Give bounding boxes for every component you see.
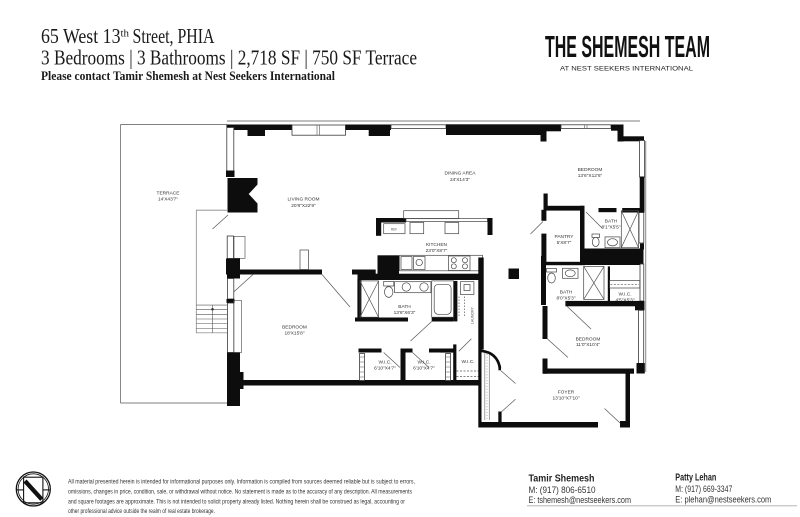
- svg-text:and square footages are approx: and square footages are approximate. Thi…: [68, 498, 406, 505]
- svg-text:REF: REF: [391, 228, 397, 232]
- svg-text:M: (917) 669-3347: M: (917) 669-3347: [675, 484, 732, 494]
- svg-text:13'6"X6'3": 13'6"X6'3": [394, 310, 416, 316]
- svg-text:24'X14'3": 24'X14'3": [450, 177, 470, 183]
- svg-text:W.I.C.: W.I.C.: [378, 360, 391, 366]
- svg-text:13'10"X7'10": 13'10"X7'10": [552, 396, 579, 402]
- svg-text:Tamir Shemesh: Tamir Shemesh: [529, 473, 595, 485]
- svg-text:8'1"X5'5": 8'1"X5'5": [601, 225, 620, 231]
- svg-text:BATH: BATH: [398, 304, 411, 310]
- svg-text:KITCHEN: KITCHEN: [426, 242, 448, 248]
- svg-text:LIVING ROOM: LIVING ROOM: [288, 197, 320, 203]
- svg-text:BEDROOM: BEDROOM: [576, 337, 601, 343]
- svg-text:14'X43'7": 14'X43'7": [158, 197, 178, 203]
- svg-text:65 West 13: 65 West 13: [41, 24, 121, 48]
- svg-text:All material presented herein: All material presented herein is intende…: [68, 479, 415, 486]
- svg-text:LAUNDRY: LAUNDRY: [471, 306, 475, 324]
- svg-text:3 Bedrooms | 3 Bathrooms | 2,7: 3 Bedrooms | 3 Bathrooms | 2,718 SF | 75…: [41, 46, 417, 70]
- svg-text:Patty Lehan: Patty Lehan: [675, 472, 716, 484]
- svg-text:BATH: BATH: [605, 219, 618, 225]
- svg-text:6'10"X4'7": 6'10"X4'7": [413, 366, 435, 372]
- svg-text:M: (917) 806-6510: M: (917) 806-6510: [529, 485, 596, 495]
- svg-text:FOYER: FOYER: [558, 390, 575, 396]
- svg-text:23'0"X8'7": 23'0"X8'7": [426, 248, 448, 254]
- svg-text:11'0"X10'4": 11'0"X10'4": [576, 342, 600, 348]
- svg-text:E: tshemesh@nestseekers.com: E: tshemesh@nestseekers.com: [529, 495, 632, 505]
- svg-text:8'0"X5'3": 8'0"X5'3": [556, 296, 575, 302]
- svg-text:PANTRY: PANTRY: [554, 234, 574, 240]
- svg-text:Street, PHIA: Street, PHIA: [133, 24, 216, 48]
- svg-text:Please contact Tamir Shemesh a: Please contact Tamir Shemesh at Nest See…: [41, 69, 335, 83]
- svg-text:AT NEST SEEKERS INTERNATIONAL: AT NEST SEEKERS INTERNATIONAL: [560, 66, 693, 73]
- svg-text:BATH: BATH: [560, 290, 573, 296]
- svg-text:W.I.C.: W.I.C.: [461, 359, 474, 365]
- svg-text:th: th: [121, 28, 130, 40]
- svg-text:W.I.C.: W.I.C.: [618, 292, 631, 298]
- svg-text:6'10"X4'7": 6'10"X4'7": [374, 366, 396, 372]
- svg-text:W.I.C.: W.I.C.: [417, 360, 430, 366]
- svg-text:BEDROOM: BEDROOM: [578, 167, 603, 173]
- svg-text:BEDROOM: BEDROOM: [282, 325, 307, 331]
- svg-text:DINING AREA: DINING AREA: [445, 171, 477, 177]
- svg-text:13'6"X12'6": 13'6"X12'6": [578, 173, 603, 179]
- svg-text:5'X8'7": 5'X8'7": [557, 240, 572, 246]
- svg-text:18'X15'8": 18'X15'8": [284, 331, 304, 337]
- svg-text:E: plehan@nestseekers.com: E: plehan@nestseekers.com: [675, 494, 771, 504]
- svg-text:THE SHEMESH TEAM: THE SHEMESH TEAM: [545, 30, 710, 64]
- svg-text:20'8"X22'9": 20'8"X22'9": [291, 203, 316, 209]
- svg-text:other professional advice outs: other professional advice outside the re…: [68, 508, 215, 515]
- svg-text:omissions, changes in price, c: omissions, changes in price, condition, …: [68, 489, 412, 496]
- svg-text:TERRACE: TERRACE: [157, 191, 180, 197]
